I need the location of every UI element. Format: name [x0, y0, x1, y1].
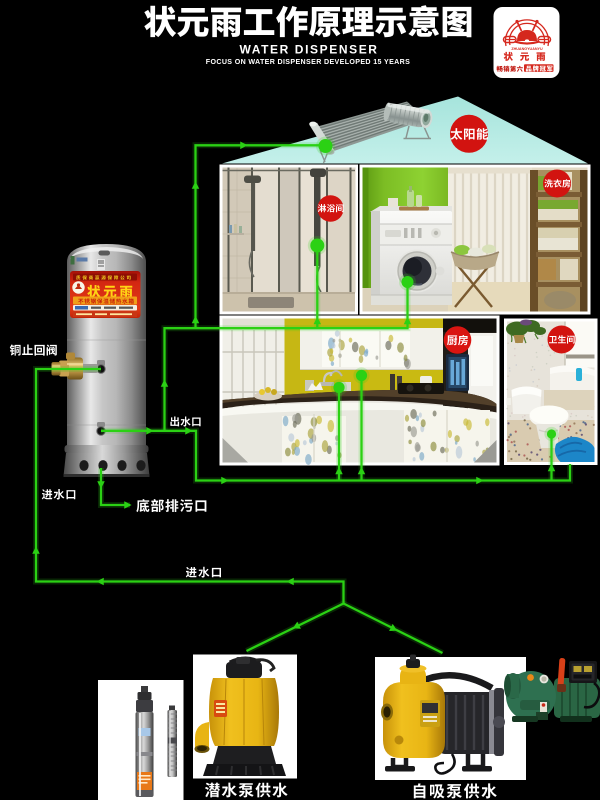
svg-text:FOCUS ON WATER DISPENSER DEVEL: FOCUS ON WATER DISPENSER DEVELOPED 15 YE… [206, 58, 410, 66]
svg-text:WATER DISPENSER: WATER DISPENSER [239, 43, 378, 57]
svg-text:ZHUANGYUANYU: ZHUANGYUANYU [511, 47, 543, 51]
